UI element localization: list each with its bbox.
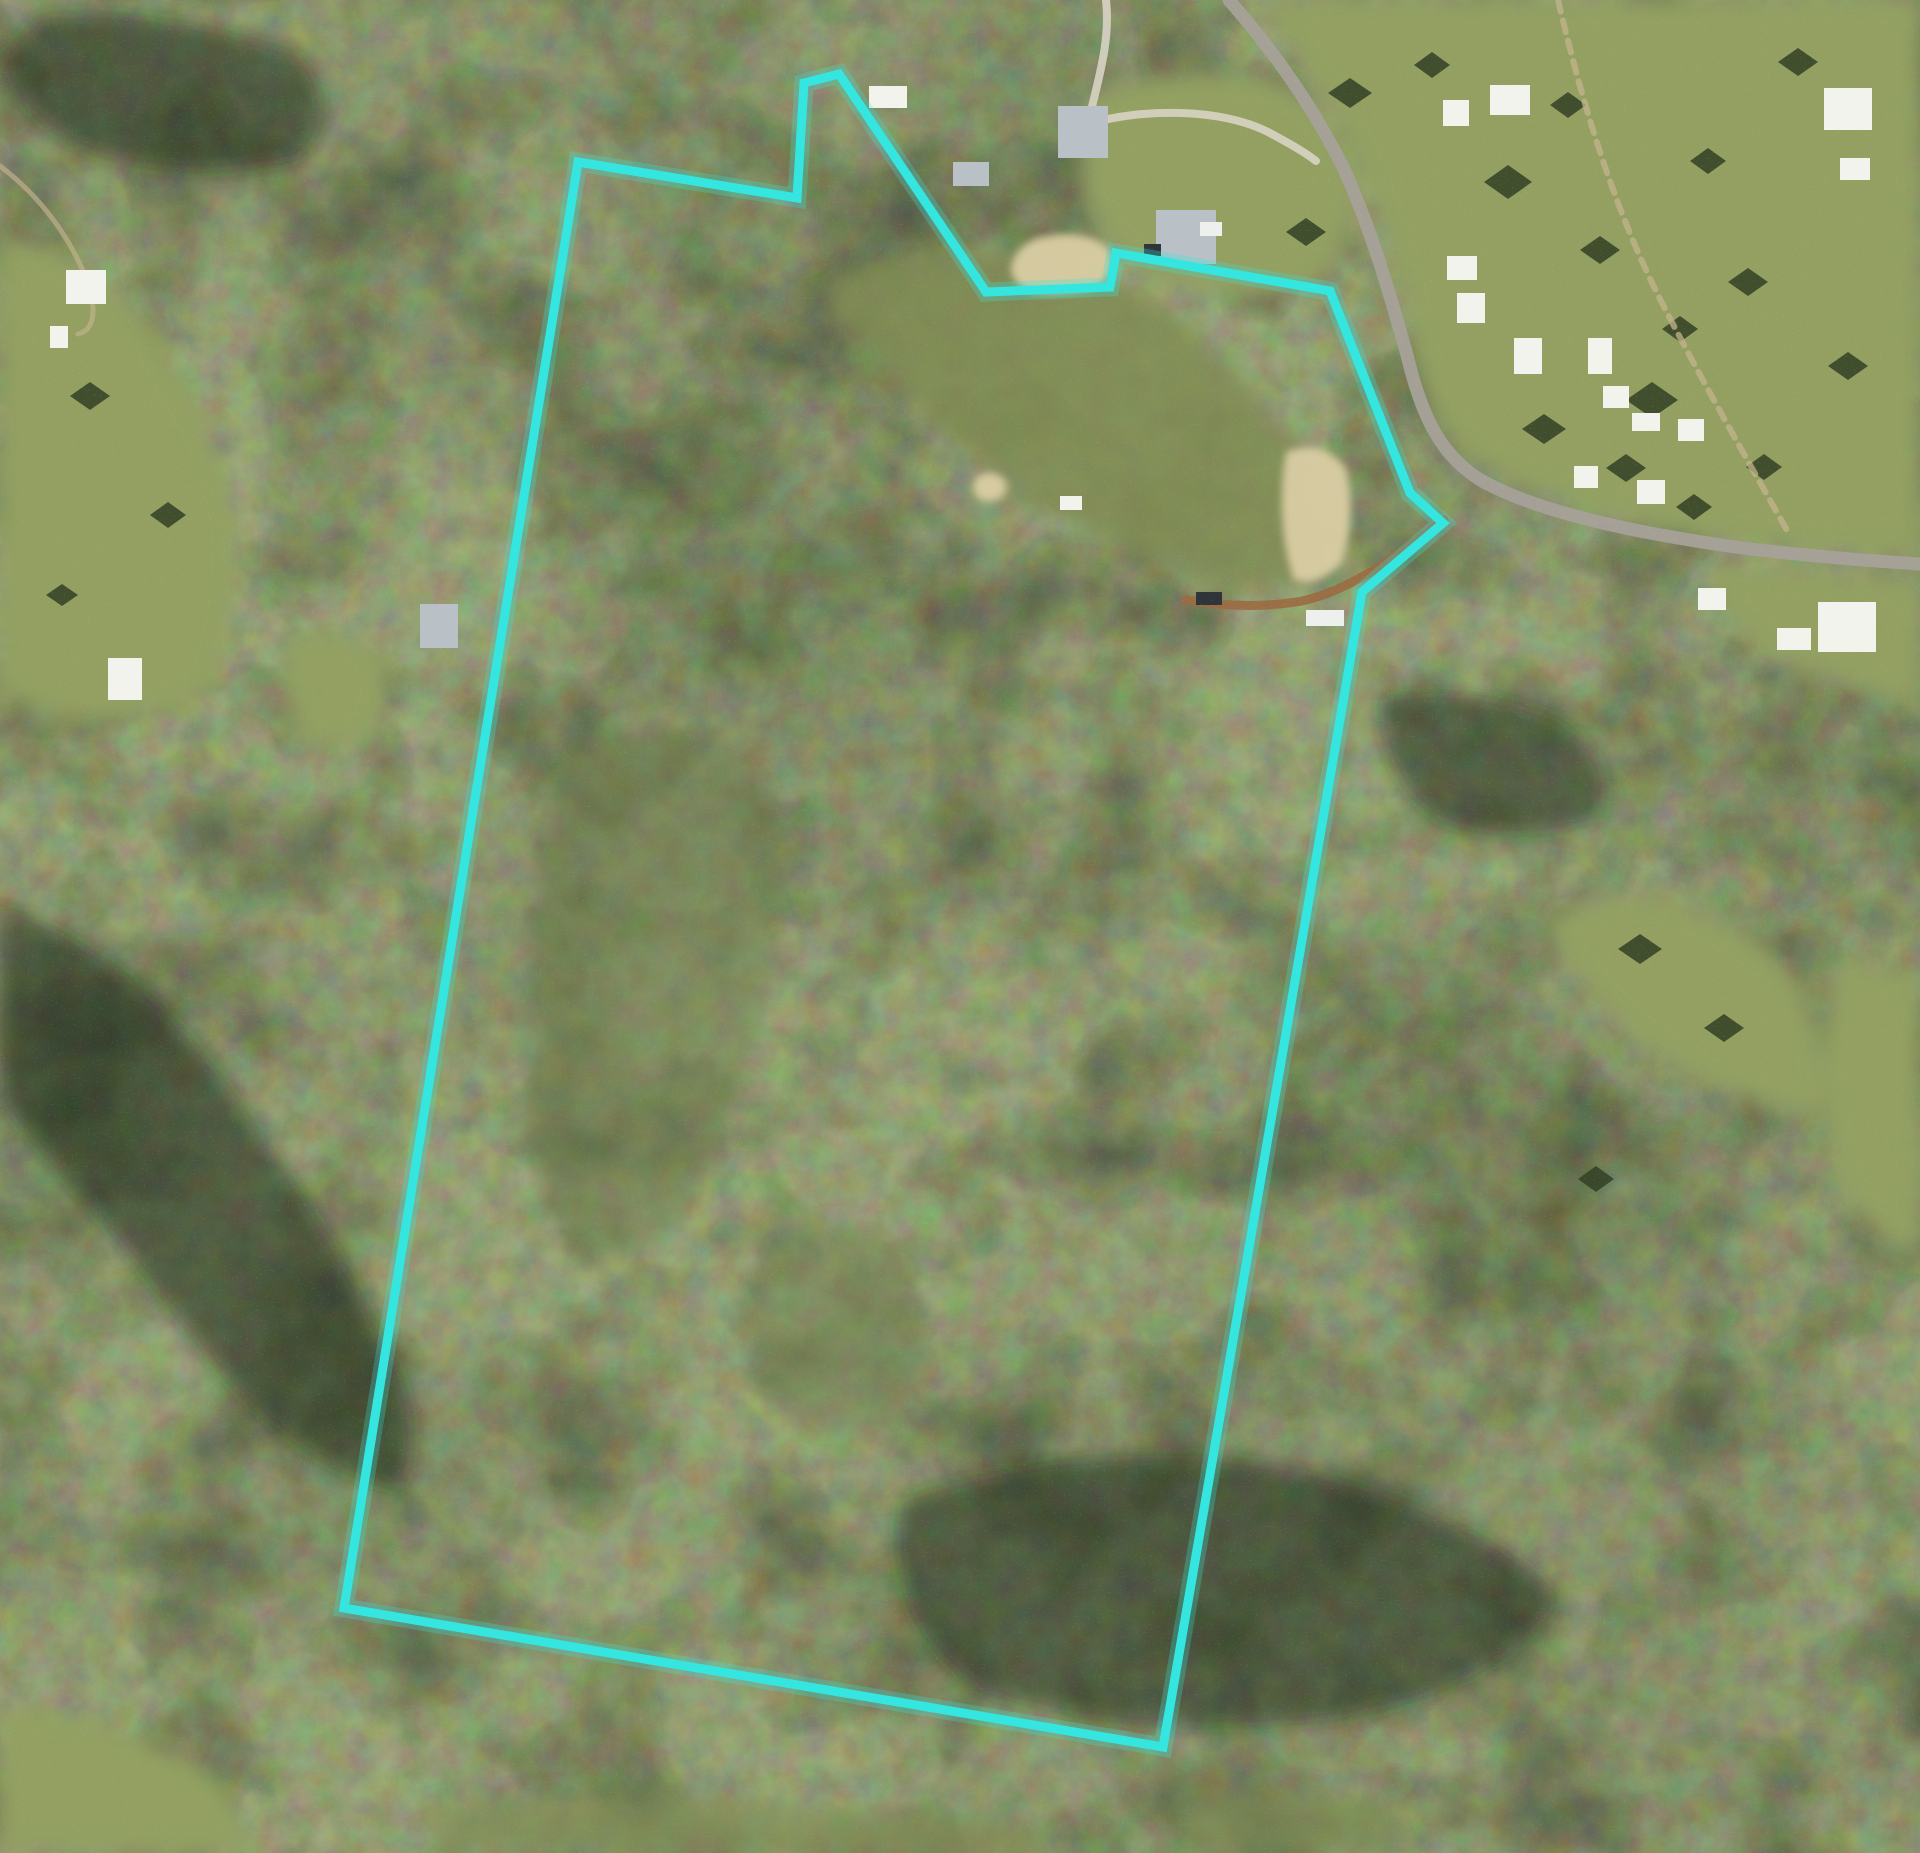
aerial-photo — [0, 0, 1920, 1853]
aerial-map-canvas — [0, 0, 1920, 1853]
film-grain-layer — [0, 0, 1920, 1853]
